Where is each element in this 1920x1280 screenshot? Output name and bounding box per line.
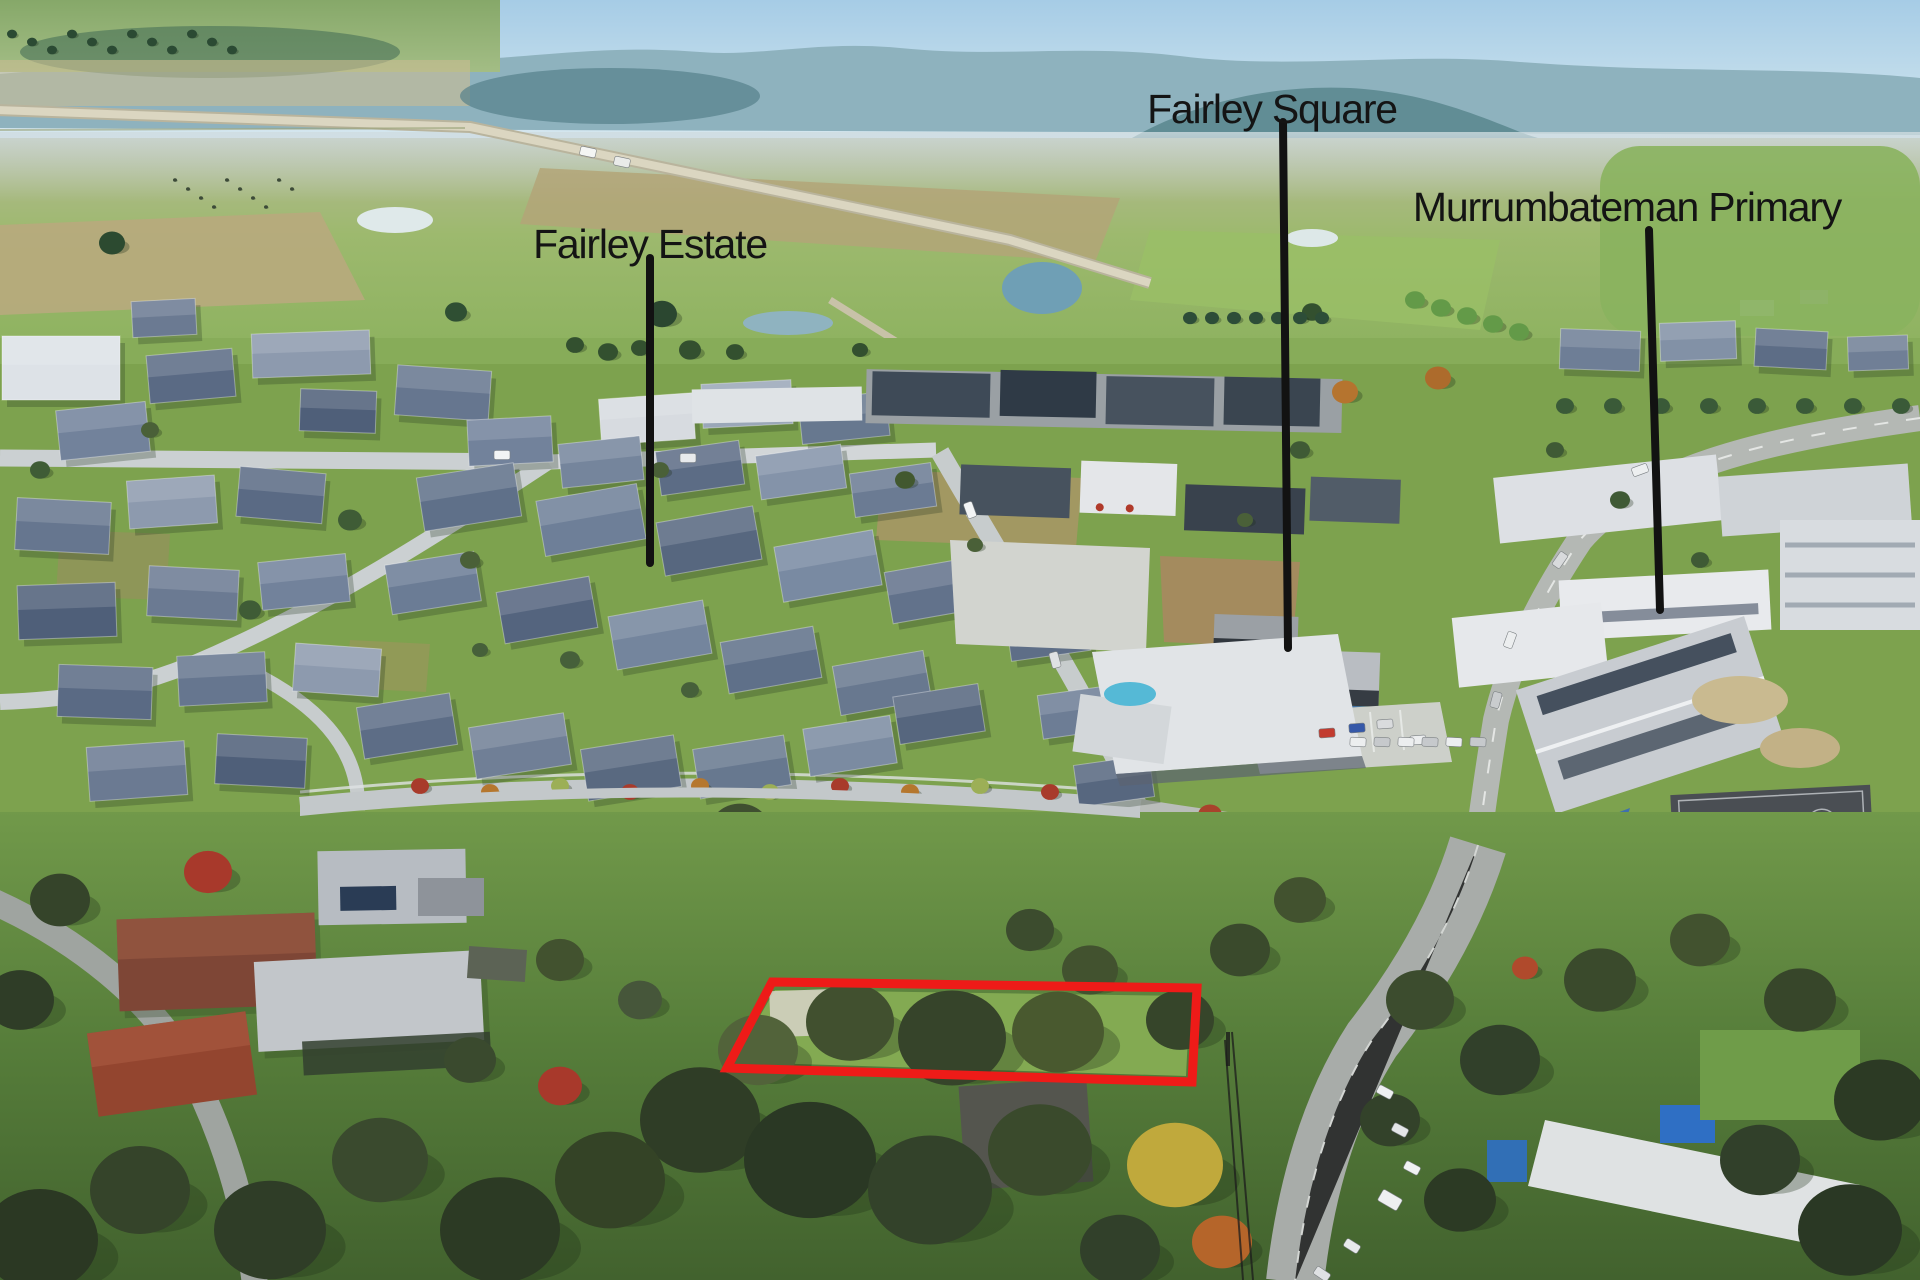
label-fairley-square: Fairley Square [1147,86,1397,133]
pointer-line-murrumbateman-primary [1649,230,1660,610]
pointer-line-fairley-square [1283,122,1288,648]
label-fairley-estate: Fairley Estate [533,221,767,268]
property-boundary-outline [727,982,1197,1082]
label-murrumbateman-primary: Murrumbateman Primary [1413,184,1841,231]
aerial-photo: Fairley Estate Fairley Square Murrumbate… [0,0,1920,1280]
